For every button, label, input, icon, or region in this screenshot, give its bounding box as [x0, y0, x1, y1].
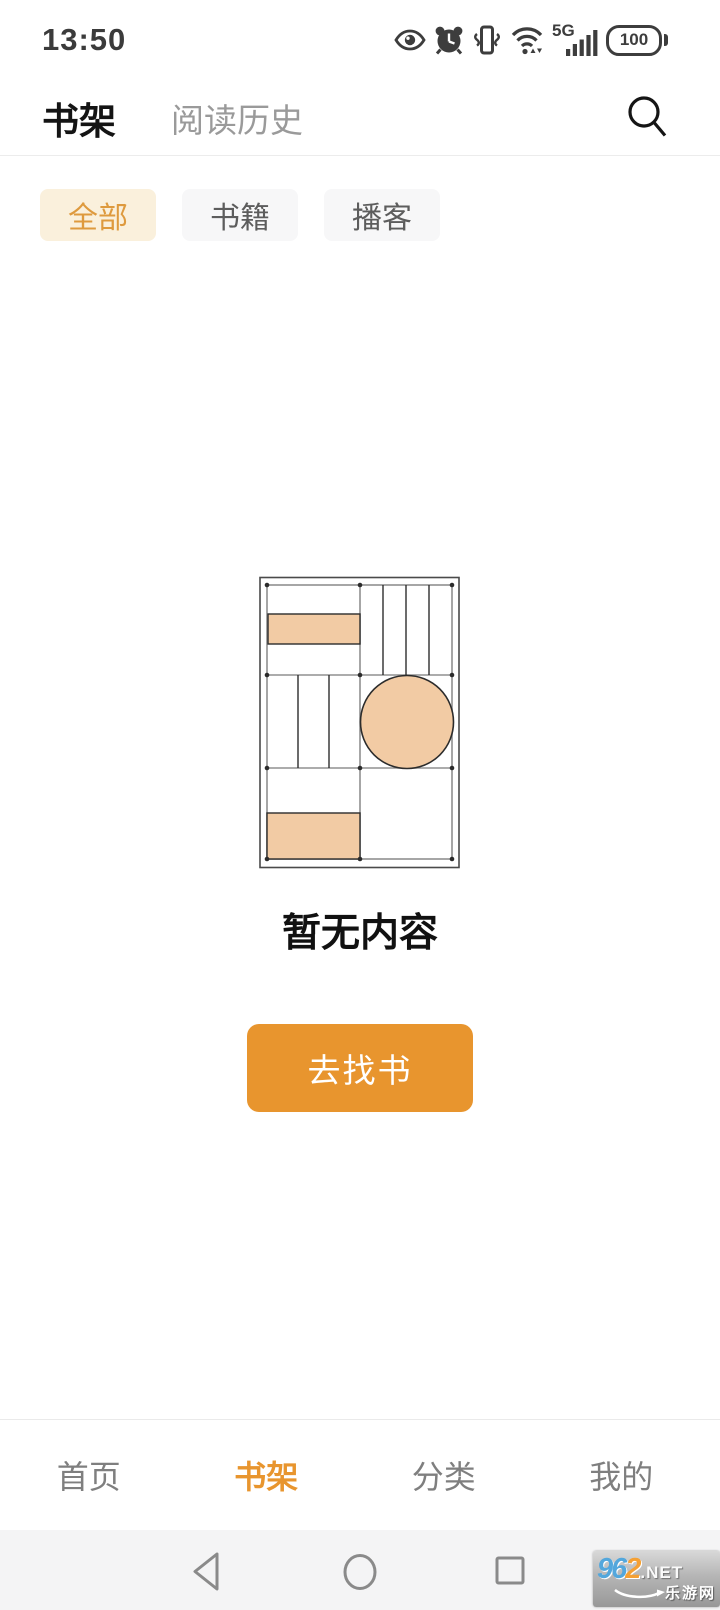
filter-chip-all[interactable]: 全部: [40, 189, 156, 241]
recents-icon: [495, 1556, 525, 1585]
tab-bookshelf[interactable]: 书架: [178, 1420, 356, 1530]
signal-bars-icon: [566, 30, 598, 56]
header: 书架 阅读历史: [0, 80, 720, 156]
android-back-button[interactable]: [190, 1551, 220, 1595]
signal-5g-icon: 5G: [552, 22, 598, 58]
android-recents-button[interactable]: [495, 1556, 525, 1588]
android-nav-bar: 962 .NET 乐游网: [0, 1530, 720, 1610]
watermark-line1: 962 .NET: [597, 1555, 716, 1584]
status-time: 13:50: [42, 22, 126, 58]
battery-icon: 100: [606, 25, 668, 56]
tab-mine[interactable]: 我的: [533, 1420, 711, 1530]
find-books-button[interactable]: 去找书: [247, 1024, 473, 1112]
empty-state-message: 暂无内容: [0, 902, 720, 958]
status-icons: 5G 100: [394, 22, 668, 58]
vibrate-icon: [472, 24, 502, 56]
bottom-tab-bar: 首页 书架 分类 我的: [0, 1419, 720, 1530]
filter-chip-podcasts[interactable]: 播客: [324, 189, 440, 241]
empty-state-illustration: [259, 576, 461, 870]
wifi-icon: [510, 24, 544, 56]
watermark-logo: 962 .NET 乐游网: [593, 1551, 720, 1607]
filter-chips: 全部 书籍 播客: [40, 189, 440, 241]
status-bar: 13:50: [0, 0, 720, 80]
search-icon: [625, 94, 669, 140]
battery-level: 100: [606, 25, 662, 56]
android-home-button[interactable]: [342, 1553, 378, 1594]
watermark-site-name: 乐游网: [665, 1582, 716, 1603]
search-button[interactable]: [624, 94, 670, 142]
alarm-clock-icon: [434, 25, 464, 55]
filter-chip-books[interactable]: 书籍: [182, 189, 298, 241]
tab-categories[interactable]: 分类: [355, 1420, 533, 1530]
tab-home[interactable]: 首页: [0, 1420, 178, 1530]
home-icon: [342, 1553, 378, 1591]
eye-icon: [394, 28, 426, 52]
screen: 13:50: [0, 0, 720, 1610]
watermark-domain: .NET: [640, 1564, 683, 1581]
header-tab-bookshelf[interactable]: 书架: [42, 91, 116, 145]
watermark-line2: 乐游网: [597, 1582, 716, 1603]
back-icon: [190, 1551, 220, 1592]
battery-nub: [664, 34, 668, 46]
swoosh-icon: [613, 1586, 665, 1600]
watermark-number: 962: [597, 1555, 639, 1584]
header-tab-reading-history[interactable]: 阅读历史: [171, 94, 303, 142]
